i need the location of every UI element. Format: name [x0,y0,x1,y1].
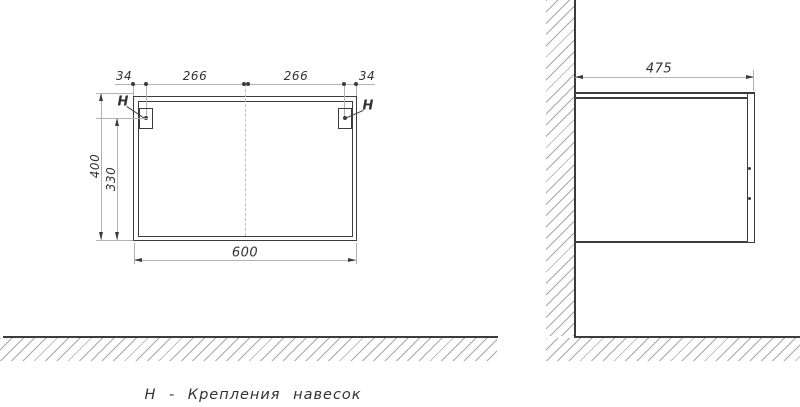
hinge-mark [748,197,751,200]
wall-line [574,0,576,337]
extension-line [96,240,133,241]
hanger-callout-right: H [363,99,374,114]
arrowhead [134,258,142,262]
cabinet-side-bottom-edge [576,241,748,243]
dim-label-600: 600 [232,246,258,261]
dim-label-34-left: 34 [116,69,132,83]
center-axis-line [245,84,246,236]
arrowhead [348,258,356,262]
dim-label-400: 400 [88,154,102,178]
arrowhead [115,118,119,126]
extension-line [96,93,133,94]
cabinet-side-top-edge [576,92,754,94]
dim-label-34-right: 34 [359,69,375,83]
dim-label-266-right: 266 [284,69,308,83]
extension-line [753,70,754,91]
dimension-tick-dot [144,82,148,86]
hinge-mark [748,167,751,170]
arrowhead [99,93,103,101]
technical-drawing-canvas: 34 266 266 34 H H 400 330 600 [0,0,800,407]
dimension-tick-dot [246,82,250,86]
extension-line [96,118,148,119]
ground-hatching-right [546,338,800,361]
depth-dimension-line [575,77,754,78]
ground-hatching-left [0,338,497,361]
arrowhead [575,75,583,79]
cabinet-side-top-inner-edge [576,97,748,99]
dim-label-330: 330 [104,167,118,191]
drawing-caption: Н - Крепления навесок [133,387,373,403]
dimension-tick-dot [354,82,358,86]
dim-label-266-left: 266 [183,69,207,83]
dimension-tick-dot [342,82,346,86]
wall-hatching [546,0,574,336]
dimension-tick-dot [242,82,246,86]
dim-label-475: 475 [646,62,672,77]
